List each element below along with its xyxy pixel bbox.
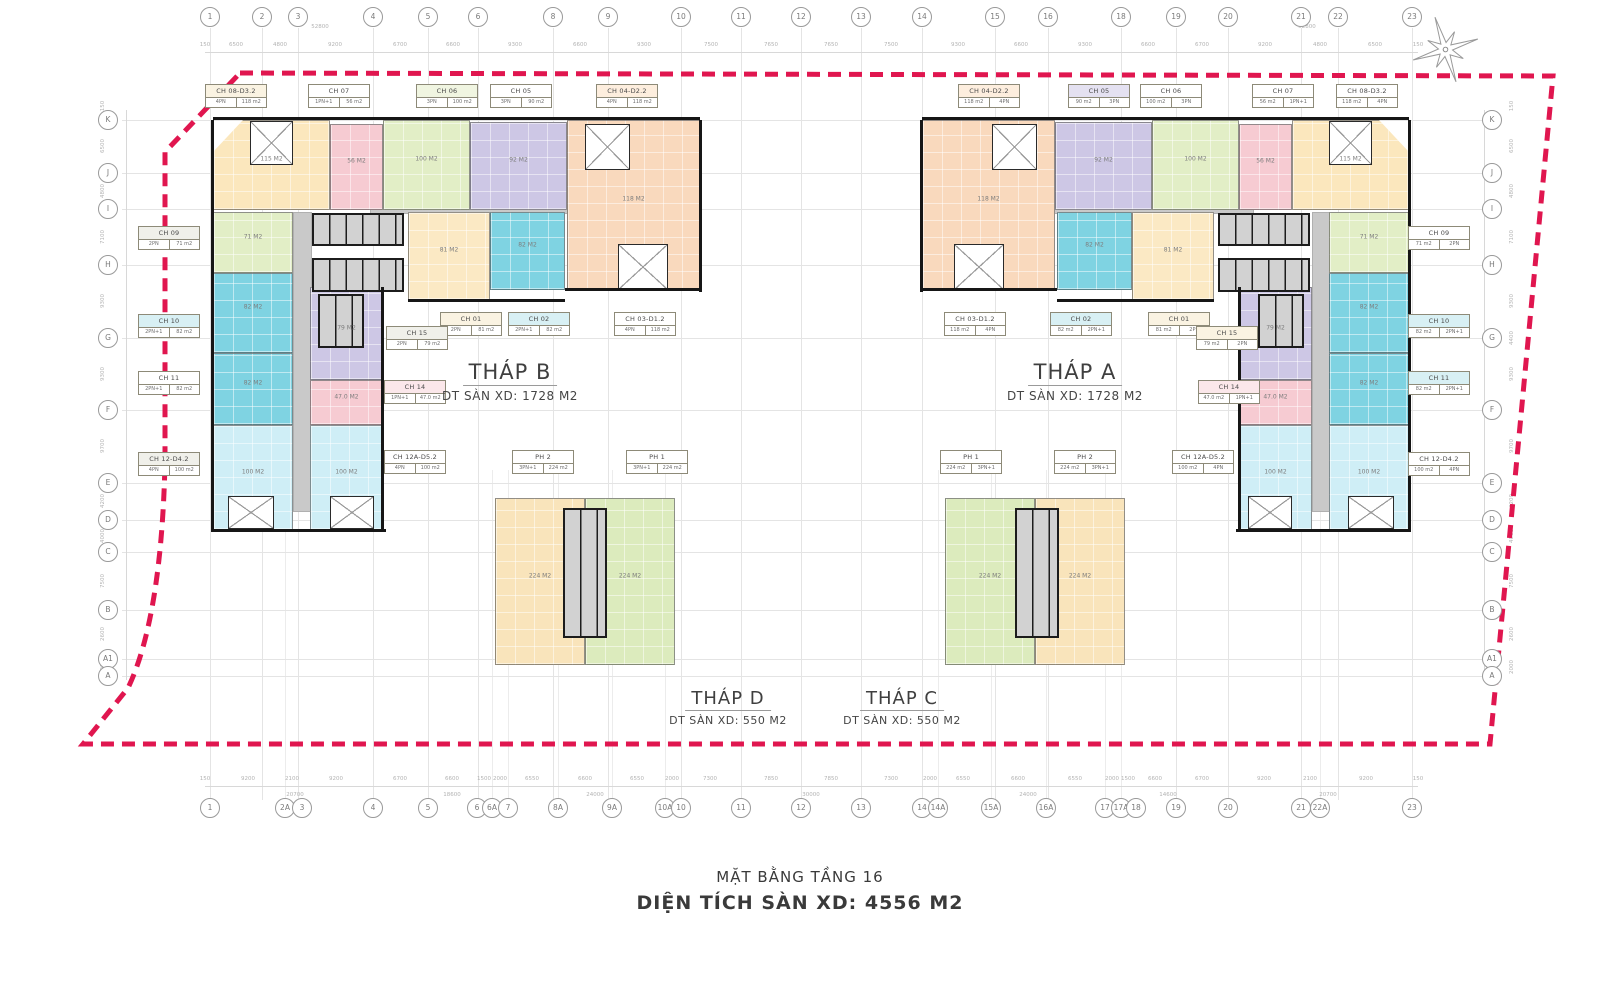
stair-shaft <box>954 244 1004 290</box>
unit-area-text: 56 M2 <box>1256 158 1275 165</box>
unit-label: CH 03-D1.2118 m24PN <box>944 312 1006 336</box>
unit-area-text: 47.0 M2 <box>334 393 358 400</box>
unit-label-name: CH 07 <box>309 85 369 98</box>
unit-label-cell-1: 71 m2 <box>1409 240 1440 249</box>
unit-label-cell-2: 118 m2 <box>628 98 658 107</box>
unit-label-cells: 118 m24PN <box>1337 98 1397 107</box>
grid-bubble-top: 9 <box>598 7 618 27</box>
unit-label-cell-1: 118 m2 <box>1337 98 1368 107</box>
unit-label: CH 1447.0 m21PN+1 <box>1198 380 1260 404</box>
unit-label-cells: 100 m24PN <box>1173 464 1233 473</box>
wall-segment <box>381 287 384 532</box>
unit-label-cell-2: 82 m2 <box>170 328 200 337</box>
unit-label-cell-2: 79 m2 <box>418 340 448 349</box>
unit-label-cell-2: 82 m2 <box>540 326 570 335</box>
unit-block-CH10-A <box>1329 273 1409 353</box>
unit-label-cell-1: 56 m2 <box>1253 98 1284 107</box>
unit-label-cell-2: 2PN+1 <box>1082 326 1112 335</box>
unit-label-cells: 82 m22PN+1 <box>1051 326 1111 335</box>
grid-bubble-right: C <box>1482 542 1502 562</box>
unit-label-cells: 47.0 m21PN+1 <box>1199 394 1259 403</box>
unit-area-text: 92 M2 <box>509 157 528 164</box>
elevator-core <box>318 294 364 348</box>
unit-label-cell-2: 47.0 m2 <box>416 394 446 403</box>
stair-shaft <box>1248 496 1292 529</box>
unit-label: CH 06100 m23PN <box>1140 84 1202 108</box>
unit-label: CH 0590 m23PN <box>1068 84 1130 108</box>
grid-bubble-left: G <box>98 328 118 348</box>
unit-label-cell-2: 2PN <box>1228 340 1258 349</box>
unit-area-text: 82 M2 <box>1360 380 1379 387</box>
tower-area: DT SÀN XD: 550 M2 <box>669 714 787 727</box>
unit-label-cells: 90 m23PN <box>1069 98 1129 107</box>
unit-label-cell-2: 100 m2 <box>170 466 200 475</box>
unit-area-text: 81 M2 <box>440 247 459 254</box>
unit-label-cell-2: 71 m2 <box>170 240 200 249</box>
unit-area-text: 100 M2 <box>335 468 357 475</box>
unit-label: CH 152PN79 m2 <box>386 326 448 350</box>
unit-label-name: CH 15 <box>387 327 447 340</box>
unit-label-cell-2: 4PN <box>1440 466 1470 475</box>
grid-bubble-top: 21 <box>1291 7 1311 27</box>
stair-shaft <box>330 496 374 529</box>
grid-bubble-bottom: 11 <box>731 798 751 818</box>
unit-area-text: 79 M2 <box>337 324 356 331</box>
elevator-core <box>312 213 404 246</box>
unit-label-name: CH 12-D4.2 <box>139 453 199 466</box>
unit-label-name: CH 11 <box>139 372 199 385</box>
unit-label-cell-2: 3PN+1 <box>1086 464 1116 473</box>
unit-label-name: CH 15 <box>1197 327 1257 340</box>
unit-area-text: 82 M2 <box>244 380 263 387</box>
unit-label-name: CH 10 <box>1409 315 1469 328</box>
unit-area-text: 81 M2 <box>1164 247 1183 254</box>
unit-label-cell-1: 100 m2 <box>1409 466 1440 475</box>
unit-label-cells: 56 m21PN+1 <box>1253 98 1313 107</box>
unit-label-cells: 100 m23PN <box>1141 98 1201 107</box>
unit-block-CH02-A <box>1057 212 1132 290</box>
elevator-core <box>1015 508 1059 638</box>
wall-segment <box>565 288 702 291</box>
unit-label: CH 141PN+147.0 m2 <box>384 380 446 404</box>
grid-bubble-bottom: 4 <box>363 798 383 818</box>
grid-bubble-bottom: 9A <box>602 798 622 818</box>
unit-label-cell-1: 118 m2 <box>959 98 990 107</box>
unit-label-cell-2: 3PN <box>1172 98 1202 107</box>
tower-title: THÁP D <box>685 688 770 711</box>
unit-label-cell-2: 118 m2 <box>646 326 676 335</box>
grid-bubble-bottom: 8A <box>548 798 568 818</box>
unit-label-cells: 82 m22PN+1 <box>1409 385 1469 394</box>
grid-bubble-right: F <box>1482 400 1502 420</box>
grid-bubble-bottom: 20 <box>1218 798 1238 818</box>
unit-label-cell-1: 3PN+1 <box>627 464 658 473</box>
grid-bubble-left: H <box>98 255 118 275</box>
grid-bubble-top: 15 <box>985 7 1005 27</box>
unit-label-cells: 4PN118 m2 <box>597 98 657 107</box>
unit-area-text: 100 M2 <box>415 156 437 163</box>
unit-label-cell-1: 2PN+1 <box>139 385 170 394</box>
unit-label-name: CH 02 <box>1051 313 1111 326</box>
unit-label-cell-1: 2PN+1 <box>139 328 170 337</box>
unit-label-cells: 4PN118 m2 <box>615 326 675 335</box>
grid-bubble-right: G <box>1482 328 1502 348</box>
grid-bubble-top: 12 <box>791 7 811 27</box>
unit-label: CH 04-D2.24PN118 m2 <box>596 84 658 108</box>
grid-bubble-bottom: 12 <box>791 798 811 818</box>
unit-label-name: CH 08-D3.2 <box>206 85 266 98</box>
stair-shaft <box>585 124 630 170</box>
grid-bubble-bottom: 23 <box>1402 798 1422 818</box>
unit-label-cell-1: 4PN <box>385 464 416 473</box>
unit-label-name: CH 09 <box>139 227 199 240</box>
unit-area-text: 79 M2 <box>1266 324 1285 331</box>
unit-label-cell-1: 4PN <box>139 466 170 475</box>
unit-label-cell-1: 79 m2 <box>1197 340 1228 349</box>
unit-area-text: 100 M2 <box>1184 156 1206 163</box>
unit-label-cell-1: 100 m2 <box>1173 464 1204 473</box>
wall-segment <box>211 529 386 532</box>
grid-bubble-top: 8 <box>543 7 563 27</box>
unit-label-name: CH 05 <box>1069 85 1129 98</box>
unit-label-cells: 4PN100 m2 <box>385 464 445 473</box>
unit-label-cell-1: 81 m2 <box>1149 326 1180 335</box>
grid-bubble-bottom: 22A <box>1310 798 1330 818</box>
unit-label-cell-1: 100 m2 <box>1141 98 1172 107</box>
unit-label: CH 1082 m22PN+1 <box>1408 314 1470 338</box>
unit-label-cells: 82 m22PN+1 <box>1409 328 1469 337</box>
unit-block-CH06-B <box>383 120 470 210</box>
unit-label-name: CH 06 <box>1141 85 1201 98</box>
grid-bubble-left: E <box>98 473 118 493</box>
unit-label-cells: 4PN100 m2 <box>139 466 199 475</box>
grid-bubble-bottom: 18 <box>1126 798 1146 818</box>
unit-label-cell-1: 82 m2 <box>1409 328 1440 337</box>
unit-label-cell-2: 118 m2 <box>237 98 267 107</box>
unit-label-name: CH 03-D1.2 <box>615 313 675 326</box>
wall-segment <box>699 120 702 292</box>
unit-label: CH 08-D3.2118 m24PN <box>1336 84 1398 108</box>
unit-label-cell-2: 4PN <box>976 326 1006 335</box>
unit-area-text: 224 M2 <box>979 572 1001 579</box>
unit-label-name: CH 12-D4.2 <box>1409 453 1469 466</box>
unit-area-text: 224 M2 <box>529 572 551 579</box>
unit-label: CH 12A-D5.24PN100 m2 <box>384 450 446 474</box>
unit-label-cell-2: 2PN+1 <box>1440 385 1470 394</box>
unit-label-name: CH 11 <box>1409 372 1469 385</box>
grid-bubble-left: F <box>98 400 118 420</box>
unit-label-cell-1: 1PN+1 <box>309 98 340 107</box>
unit-label-cell-1: 224 m2 <box>1055 464 1086 473</box>
unit-label: PH 23PN+1224 m2 <box>512 450 574 474</box>
unit-area-text: 100 M2 <box>1358 468 1380 475</box>
unit-label-cell-2: 81 m2 <box>472 326 502 335</box>
unit-label-name: PH 2 <box>1055 451 1115 464</box>
unit-label-cells: 4PN118 m2 <box>206 98 266 107</box>
unit-label-cell-2: 100 m2 <box>416 464 446 473</box>
unit-label-cell-1: 47.0 m2 <box>1199 394 1230 403</box>
grid-bubble-top: 4 <box>363 7 383 27</box>
grid-bubble-right: B <box>1482 600 1502 620</box>
unit-label-cell-2: 4PN <box>1368 98 1398 107</box>
unit-label: CH 112PN+182 m2 <box>138 371 200 395</box>
unit-label-name: CH 10 <box>139 315 199 328</box>
unit-label-cells: 1PN+156 m2 <box>309 98 369 107</box>
tower-area: DT SÀN XD: 1728 M2 <box>442 389 578 403</box>
unit-block-CH09-B <box>213 212 293 273</box>
unit-label-cell-1: 90 m2 <box>1069 98 1100 107</box>
grid-bubble-bottom: 19 <box>1166 798 1186 818</box>
unit-label-cell-2: 2PN+1 <box>1440 328 1470 337</box>
unit-area-text: 224 M2 <box>619 572 641 579</box>
wall-segment <box>1057 299 1214 302</box>
unit-block-CH09-A <box>1329 212 1409 273</box>
unit-label-cells: 2PN+182 m2 <box>139 328 199 337</box>
unit-label: CH 071PN+156 m2 <box>308 84 370 108</box>
unit-block-CH06-A <box>1152 120 1239 210</box>
tower-title: THÁP B <box>463 360 558 386</box>
unit-label-cell-1: 3PN <box>417 98 448 107</box>
unit-label-cells: 118 m24PN <box>945 326 1005 335</box>
unit-label: CH 022PN+182 m2 <box>508 312 570 336</box>
unit-label-cells: 2PN81 m2 <box>441 326 501 335</box>
grid-bubble-top: 13 <box>851 7 871 27</box>
elevator-core <box>1258 294 1304 348</box>
grid-bubble-top: 6 <box>468 7 488 27</box>
grid-bubble-left: C <box>98 542 118 562</box>
unit-label-cell-1: 82 m2 <box>1409 385 1440 394</box>
elevator-core <box>563 508 607 638</box>
unit-label-name: CH 03-D1.2 <box>945 313 1005 326</box>
wall-segment <box>213 117 700 120</box>
unit-label-cells: 2PN+182 m2 <box>509 326 569 335</box>
grid-bubble-left: I <box>98 199 118 219</box>
unit-block-CH14-B <box>310 380 383 425</box>
unit-label-cells: 2PN71 m2 <box>139 240 199 249</box>
unit-label-cell-2: 2PN <box>1440 240 1470 249</box>
grid-bubble-right: K <box>1482 110 1502 130</box>
grid-bubble-right: A <box>1482 666 1502 686</box>
unit-label-name: PH 1 <box>627 451 687 464</box>
unit-label-name: CH 06 <box>417 85 477 98</box>
unit-label: CH 0282 m22PN+1 <box>1050 312 1112 336</box>
unit-label-cell-1: 4PN <box>206 98 237 107</box>
unit-label: PH 1224 m23PN+1 <box>940 450 1002 474</box>
unit-area-text: 100 M2 <box>242 468 264 475</box>
unit-label-cell-1: 118 m2 <box>945 326 976 335</box>
unit-label-cells: 118 m24PN <box>959 98 1019 107</box>
grid-bubble-top: 14 <box>912 7 932 27</box>
wall-segment <box>408 299 565 302</box>
unit-label: CH 03-D1.24PN118 m2 <box>614 312 676 336</box>
grid-bubble-left: J <box>98 163 118 183</box>
grid-bubble-top: 11 <box>731 7 751 27</box>
stair-shaft <box>618 244 668 290</box>
tower-title-block: THÁP BDT SÀN XD: 1728 M2 <box>442 360 578 403</box>
unit-label: CH 12-D4.2100 m24PN <box>1408 452 1470 476</box>
grid-bubble-right: E <box>1482 473 1502 493</box>
tower-title-block: THÁP ADT SÀN XD: 1728 M2 <box>1007 360 1143 403</box>
unit-label-cell-1: 3PN <box>491 98 522 107</box>
unit-area-text: 71 M2 <box>1360 233 1379 240</box>
grid-bubble-bottom: 14A <box>928 798 948 818</box>
tower-title-block: THÁP DDT SÀN XD: 550 M2 <box>669 688 787 727</box>
unit-label-name: CH 01 <box>441 313 501 326</box>
grid-bubble-top: 3 <box>288 7 308 27</box>
unit-label-name: CH 08-D3.2 <box>1337 85 1397 98</box>
unit-label: CH 12-D4.24PN100 m2 <box>138 452 200 476</box>
unit-area-text: 47.0 M2 <box>1263 393 1287 400</box>
unit-label: CH 0756 m21PN+1 <box>1252 84 1314 108</box>
unit-label: CH 08-D3.24PN118 m2 <box>205 84 267 108</box>
unit-label-name: CH 14 <box>385 381 445 394</box>
wall-segment <box>920 288 1057 291</box>
grid-bubble-left: D <box>98 510 118 530</box>
unit-label-cell-2: 3PN <box>1100 98 1130 107</box>
unit-label-name: CH 14 <box>1199 381 1259 394</box>
unit-label-cell-2: 1PN+1 <box>1230 394 1260 403</box>
unit-label: CH 1579 m22PN <box>1196 326 1258 350</box>
unit-label-cell-2: 224 m2 <box>658 464 688 473</box>
grid-bubble-bottom: 5 <box>418 798 438 818</box>
unit-block-CH05-A <box>1055 122 1152 210</box>
unit-label-cell-1: 3PN+1 <box>513 464 544 473</box>
unit-label-name: CH 01 <box>1149 313 1209 326</box>
grid-bubble-bottom: 3 <box>292 798 312 818</box>
unit-label-cells: 2PN79 m2 <box>387 340 447 349</box>
grid-bubble-left: B <box>98 600 118 620</box>
grid-bubble-right: J <box>1482 163 1502 183</box>
unit-area-text: 71 M2 <box>244 233 263 240</box>
unit-label-cell-2: 224 m2 <box>544 464 574 473</box>
unit-block-CH01-A <box>1132 212 1214 300</box>
grid-bubble-top: 10 <box>671 7 691 27</box>
grid-bubble-top: 1 <box>200 7 220 27</box>
tower-area: DT SÀN XD: 550 M2 <box>843 714 961 727</box>
unit-label-cell-1: 2PN+1 <box>509 326 540 335</box>
unit-block-CH02-B <box>490 212 565 290</box>
tower-title-block: THÁP CDT SÀN XD: 550 M2 <box>843 688 961 727</box>
unit-block-CH05-B <box>470 122 567 210</box>
unit-label-cells: 100 m24PN <box>1409 466 1469 475</box>
unit-label-cells: 79 m22PN <box>1197 340 1257 349</box>
unit-label-name: CH 02 <box>509 313 569 326</box>
grid-bubble-right: D <box>1482 510 1502 530</box>
unit-area-text: 118 M2 <box>977 196 999 203</box>
unit-block-CH11-A <box>1329 353 1409 425</box>
wall-segment <box>922 117 1409 120</box>
unit-label-name: CH 12A-D5.2 <box>385 451 445 464</box>
unit-label-cells: 3PN+1224 m2 <box>627 464 687 473</box>
unit-label-cell-1: 4PN <box>615 326 646 335</box>
grid-bubble-bottom: 16A <box>1036 798 1056 818</box>
unit-area-text: 56 M2 <box>347 158 366 165</box>
grid-bubble-top: 2 <box>252 7 272 27</box>
unit-label: CH 0971 m22PN <box>1408 226 1470 250</box>
unit-label: CH 053PN90 m2 <box>490 84 552 108</box>
unit-label-cells: 3PN100 m2 <box>417 98 477 107</box>
unit-label-name: PH 2 <box>513 451 573 464</box>
wall-segment <box>1238 287 1241 532</box>
unit-label-cell-2: 4PN <box>1204 464 1234 473</box>
tower-title: THÁP C <box>860 688 944 711</box>
grid-bubble-bottom: 10 <box>671 798 691 818</box>
unit-label-cell-2: 82 m2 <box>170 385 200 394</box>
unit-label-cell-1: 82 m2 <box>1051 326 1082 335</box>
unit-block-CH07-A <box>1239 124 1292 210</box>
plan-title-block: MẶT BẰNG TẦNG 16 DIỆN TÍCH SÀN XD: 4556 … <box>0 868 1600 914</box>
unit-area-text: 118 M2 <box>622 196 644 203</box>
unit-label: CH 063PN100 m2 <box>416 84 478 108</box>
unit-label: CH 12A-D5.2100 m24PN <box>1172 450 1234 474</box>
unit-label-name: CH 09 <box>1409 227 1469 240</box>
grid-bubble-bottom: 7 <box>498 798 518 818</box>
unit-label-cell-2: 56 m2 <box>340 98 370 107</box>
grid-bubble-bottom: 21 <box>1291 798 1311 818</box>
unit-label-cells: 3PN+1224 m2 <box>513 464 573 473</box>
unit-label-cells: 71 m22PN <box>1409 240 1469 249</box>
grid-bubble-top: 20 <box>1218 7 1238 27</box>
plan-title: MẶT BẰNG TẦNG 16 <box>0 868 1600 886</box>
tower-title: THÁP A <box>1028 360 1123 386</box>
unit-area-text: 100 M2 <box>1264 468 1286 475</box>
grid-bubble-top: 22 <box>1328 7 1348 27</box>
unit-label: CH 04-D2.2118 m24PN <box>958 84 1020 108</box>
unit-label-cell-2: 100 m2 <box>448 98 478 107</box>
plan-subtitle: DIỆN TÍCH SÀN XD: 4556 M2 <box>0 892 1600 914</box>
wall-segment <box>920 120 923 292</box>
unit-area-text: 82 M2 <box>244 304 263 311</box>
unit-block-CH01-B <box>408 212 490 300</box>
unit-label-cell-1: 4PN <box>597 98 628 107</box>
grid-bubble-bottom: 1 <box>200 798 220 818</box>
elevator-core <box>1218 258 1310 292</box>
unit-label: CH 012PN81 m2 <box>440 312 502 336</box>
unit-area-text: 82 M2 <box>1085 242 1104 249</box>
unit-block-CH10-B <box>213 273 293 353</box>
grid-bubble-bottom: 15A <box>981 798 1001 818</box>
grid-bubble-bottom: 13 <box>851 798 871 818</box>
unit-area-text: 115 M2 <box>260 156 282 163</box>
unit-block-CH11-B <box>213 353 293 425</box>
unit-label-cells: 224 m23PN+1 <box>941 464 1001 473</box>
unit-label-cells: 2PN+182 m2 <box>139 385 199 394</box>
unit-label-name: CH 07 <box>1253 85 1313 98</box>
grid-bubble-top: 23 <box>1402 7 1422 27</box>
unit-label-cell-2: 3PN+1 <box>972 464 1002 473</box>
unit-area-text: 82 M2 <box>518 242 537 249</box>
unit-area-text: 224 M2 <box>1069 572 1091 579</box>
unit-area-text: 92 M2 <box>1094 157 1113 164</box>
unit-area-text: 115 M2 <box>1339 156 1361 163</box>
elevator-core <box>1218 213 1310 246</box>
unit-label-cell-1: 224 m2 <box>941 464 972 473</box>
grid-bubble-left: A <box>98 666 118 686</box>
unit-block-CH07-B <box>330 124 383 210</box>
grid-bubble-right: I <box>1482 199 1502 219</box>
wall-segment <box>211 120 214 532</box>
unit-label: CH 092PN71 m2 <box>138 226 200 250</box>
unit-label-name: PH 1 <box>941 451 1001 464</box>
unit-label-name: CH 12A-D5.2 <box>1173 451 1233 464</box>
stair-shaft <box>992 124 1037 170</box>
unit-label-cell-2: 1PN+1 <box>1284 98 1314 107</box>
grid-bubble-left: K <box>98 110 118 130</box>
wall-segment <box>1236 529 1411 532</box>
unit-label: CH 102PN+182 m2 <box>138 314 200 338</box>
grid-bubble-top: 16 <box>1038 7 1058 27</box>
tower-area: DT SÀN XD: 1728 M2 <box>1007 389 1143 403</box>
